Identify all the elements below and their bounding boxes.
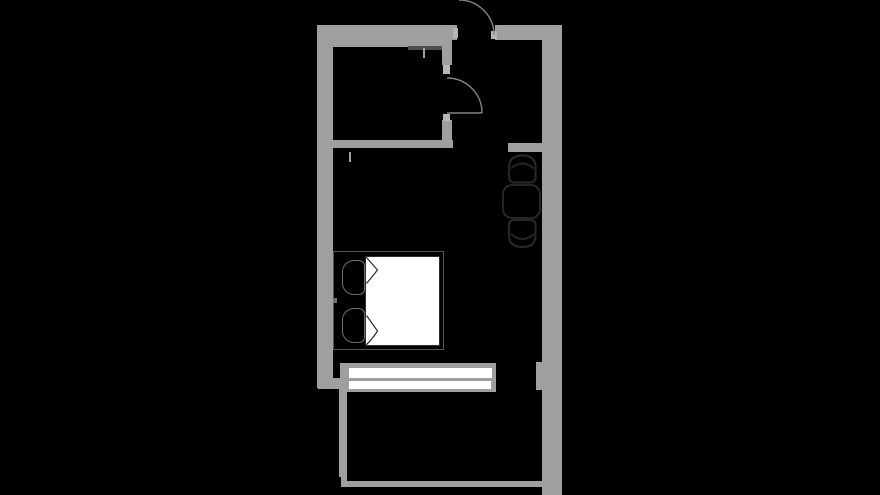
jamb-entry-door-left — [453, 28, 458, 38]
jamb-bathroom-door-top — [443, 65, 450, 74]
entry-door-swing-arc — [459, 0, 494, 35]
chair-bottom-seat — [509, 220, 536, 247]
bed-blanket — [365, 256, 440, 346]
wall-balcony-bottom — [342, 481, 549, 487]
jamb-bathroom-door-bottom — [443, 114, 450, 121]
wall-left — [317, 25, 333, 388]
window-pane-lower — [349, 381, 491, 389]
dining-table — [502, 184, 541, 219]
wall-balcony-left — [339, 388, 347, 477]
bathroom-door-swing-arc — [447, 78, 482, 113]
wall-window-pier — [536, 362, 560, 390]
floorplan — [0, 0, 880, 495]
bed-edge-tick — [333, 298, 337, 303]
jamb-entry-door-right — [491, 31, 497, 39]
chair-bottom-back — [511, 234, 534, 239]
wall-top-bathroom — [317, 25, 448, 47]
floorplan-doors-and-details — [0, 0, 880, 495]
pillow-top — [342, 260, 365, 295]
wall-bathroom-south — [328, 140, 453, 148]
wall-bathroom-partition-upper — [442, 40, 452, 65]
shower-screen-tick — [423, 48, 425, 58]
pillow-bottom — [342, 308, 365, 343]
wall-entry-stub — [508, 143, 542, 152]
window-pane-upper — [349, 368, 492, 378]
wall-end-tick — [349, 152, 351, 162]
wall-right — [542, 25, 562, 495]
shower-screen-line — [408, 46, 442, 50]
chair-top-seat — [509, 156, 536, 183]
chair-top-back — [511, 164, 534, 169]
